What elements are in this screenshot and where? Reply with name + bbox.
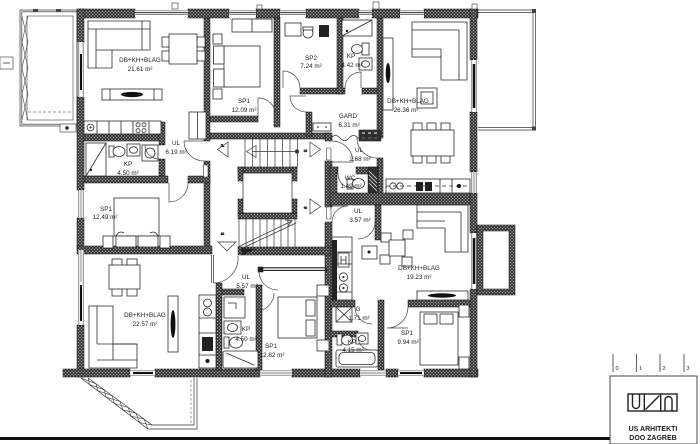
svg-text:21.61 m²: 21.61 m² <box>128 66 153 73</box>
svg-text:KP: KP <box>347 53 355 60</box>
svg-text:12.49 m²: 12.49 m² <box>93 214 118 221</box>
svg-text:4.15 m²: 4.15 m² <box>342 347 363 354</box>
svg-text:2.68 m²: 2.68 m² <box>349 156 370 163</box>
svg-text:22.57 m²: 22.57 m² <box>133 321 158 328</box>
svg-text:UL: UL <box>172 140 181 147</box>
svg-text:SP2: SP2 <box>305 55 317 62</box>
svg-text:1.71 m²: 1.71 m² <box>348 315 369 322</box>
svg-text:3: 3 <box>687 366 690 372</box>
svg-text:US ARHITEKTI: US ARHITEKTI <box>629 426 678 433</box>
svg-text:4.50 m²: 4.50 m² <box>117 170 138 177</box>
svg-text:UL: UL <box>354 208 363 215</box>
svg-text:SP1: SP1 <box>401 330 413 337</box>
svg-text:UL: UL <box>355 147 364 154</box>
svg-text:DOO ZAGREB: DOO ZAGREB <box>629 435 676 442</box>
svg-text:KP: KP <box>124 161 132 168</box>
svg-text:UL: UL <box>242 274 251 281</box>
svg-text:4.42 m²: 4.42 m² <box>341 62 362 69</box>
svg-text:6.31 m²: 6.31 m² <box>338 122 359 129</box>
svg-text:26.36 m²: 26.36 m² <box>394 107 419 114</box>
svg-text:12.82 m²: 12.82 m² <box>260 352 285 359</box>
svg-text:19.23 m²: 19.23 m² <box>407 274 432 281</box>
svg-text:KP: KP <box>348 339 356 346</box>
svg-text:5.57 m²: 5.57 m² <box>236 283 257 290</box>
svg-text:DB+KH+BLAG: DB+KH+BLAG <box>387 98 429 105</box>
svg-text:12.09 m²: 12.09 m² <box>232 107 257 114</box>
svg-text:WC: WC <box>345 175 356 182</box>
svg-text:0: 0 <box>616 366 619 372</box>
svg-text:6.19 m²: 6.19 m² <box>165 149 186 156</box>
svg-text:G: G <box>356 306 361 313</box>
svg-text:2: 2 <box>663 366 666 372</box>
svg-text:3.57 m²: 3.57 m² <box>349 217 370 224</box>
svg-text:P: P <box>220 144 225 147</box>
svg-text:DB+KH+BLAG: DB+KH+BLAG <box>119 57 161 64</box>
svg-text:SP1: SP1 <box>238 98 250 105</box>
svg-text:4.50 m²: 4.50 m² <box>235 336 256 343</box>
svg-text:DB+KH+BLAG: DB+KH+BLAG <box>124 312 166 319</box>
svg-text:DB+KH+BLAG: DB+KH+BLAG <box>398 265 440 272</box>
svg-text:7.24 m²: 7.24 m² <box>300 63 321 70</box>
svg-text:GARD: GARD <box>339 113 358 120</box>
svg-text:1: 1 <box>639 366 642 372</box>
svg-text:9.94 m²: 9.94 m² <box>397 339 418 346</box>
svg-text:SP1: SP1 <box>265 343 277 350</box>
svg-text:1.49 m²: 1.49 m² <box>340 183 361 190</box>
svg-text:SP1: SP1 <box>100 206 112 213</box>
svg-text:KP: KP <box>242 326 250 333</box>
